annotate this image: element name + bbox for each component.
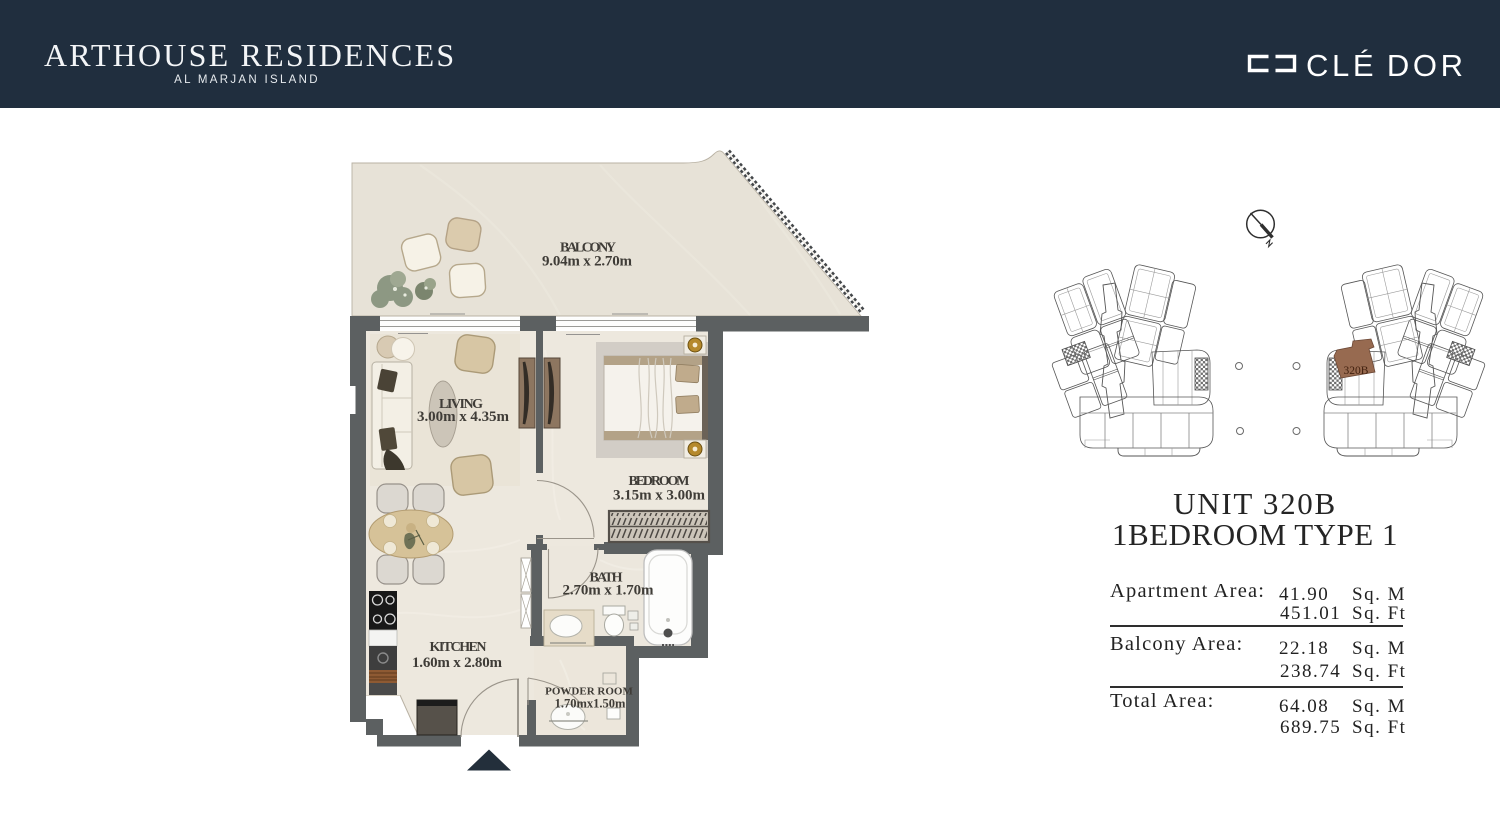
svg-text:1.70mx1.50m: 1.70mx1.50m [555,697,626,711]
svg-text:3.15m x 3.00m: 3.15m x 3.00m [613,488,706,504]
svg-text:3.00m x 4.35m: 3.00m x 4.35m [417,409,510,425]
svg-text:1.60m x 2.80m: 1.60m x 2.80m [412,655,503,671]
svg-text:320B: 320B [1344,365,1369,377]
svg-text:9.04m x 2.70m: 9.04m x 2.70m [542,254,633,270]
svg-text:KITCHEN: KITCHEN [430,640,487,655]
svg-text:2.70m x 1.70m: 2.70m x 1.70m [563,583,655,599]
